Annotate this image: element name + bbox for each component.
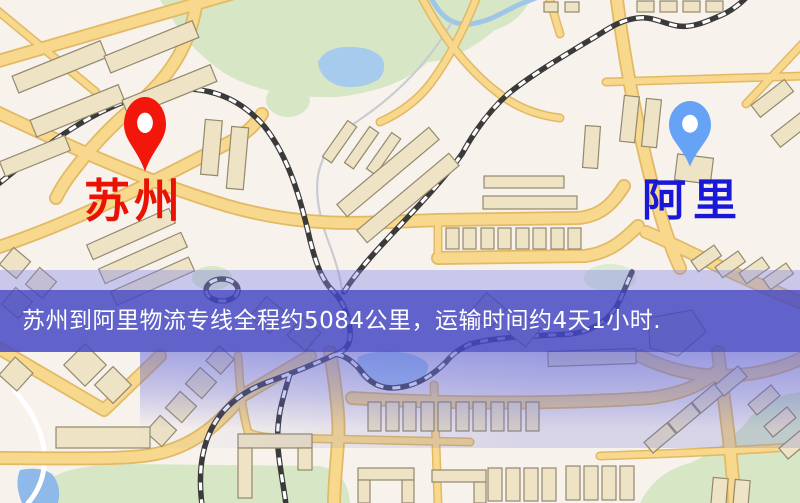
origin-marker-pin[interactable]	[124, 97, 166, 173]
destination-city-label: 阿里	[642, 177, 744, 225]
origin-city-label: 苏州	[84, 176, 184, 227]
destination-marker-pin[interactable]	[669, 101, 711, 168]
map-pin-icon	[669, 101, 711, 168]
map[interactable]: 苏州到阿里物流专线全程约5084公里，运输时间约4天1小时. 苏州 阿里	[0, 0, 800, 503]
map-pin-icon	[124, 97, 166, 173]
route-info-text: 苏州到阿里物流专线全程约5084公里，运输时间约4天1小时.	[22, 290, 661, 352]
map-canvas	[0, 0, 800, 503]
route-info-banner: 苏州到阿里物流专线全程约5084公里，运输时间约4天1小时.	[0, 290, 800, 352]
